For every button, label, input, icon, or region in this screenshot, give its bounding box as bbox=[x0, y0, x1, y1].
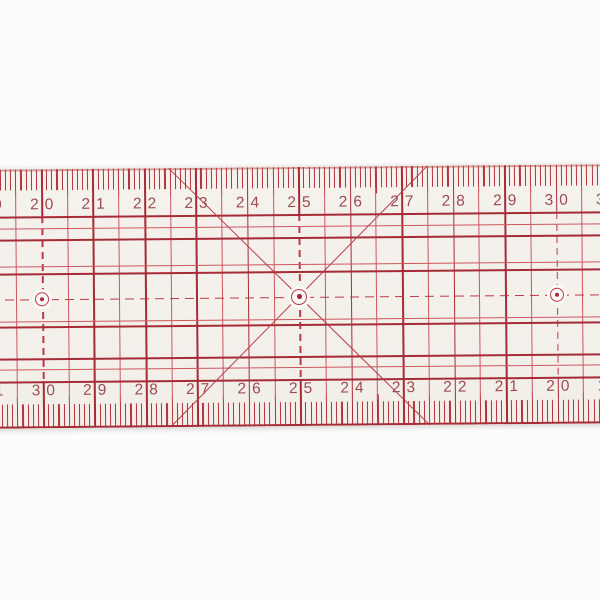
punch-hole-center-dot bbox=[554, 292, 558, 296]
mm-tick bbox=[576, 165, 577, 186]
mm-tick bbox=[566, 165, 567, 186]
mm-tick bbox=[396, 166, 397, 187]
mm-tick bbox=[161, 403, 162, 427]
mm-tick bbox=[192, 403, 193, 427]
mm-tick bbox=[113, 169, 114, 190]
mm-tick bbox=[308, 167, 309, 188]
mm-tick bbox=[105, 404, 106, 428]
mm-tick bbox=[154, 168, 155, 189]
mm-tick bbox=[100, 404, 101, 428]
mm-tick bbox=[151, 403, 152, 427]
mm-tick bbox=[393, 401, 394, 425]
mm-tick bbox=[519, 165, 520, 186]
mm-tick bbox=[540, 165, 541, 186]
mm-tick bbox=[485, 400, 486, 424]
mm-tick bbox=[499, 165, 500, 186]
mm-tick bbox=[136, 403, 137, 427]
mm-tick bbox=[175, 168, 176, 189]
mm-tick bbox=[442, 166, 443, 187]
scale-number: 28 bbox=[442, 193, 471, 211]
mm-tick bbox=[488, 165, 489, 186]
mm-tick bbox=[550, 165, 551, 186]
mm-tick bbox=[382, 401, 383, 425]
scale-number: 29 bbox=[493, 192, 522, 210]
mm-tick bbox=[128, 168, 129, 189]
mm-tick bbox=[447, 166, 448, 187]
mm-tick bbox=[463, 166, 464, 187]
mm-tick bbox=[236, 168, 237, 189]
mm-tick bbox=[563, 400, 564, 424]
mm-tick bbox=[5, 170, 6, 191]
mm-tick bbox=[288, 167, 289, 188]
mm-tick bbox=[511, 400, 512, 424]
mm-tick bbox=[226, 168, 227, 189]
mm-tick bbox=[460, 401, 461, 425]
mm-tick bbox=[56, 169, 57, 190]
mm-tick bbox=[331, 402, 332, 426]
half-cm-line bbox=[581, 186, 584, 398]
mm-tick bbox=[468, 166, 469, 187]
mm-tick bbox=[367, 401, 368, 425]
scale-number: 27 bbox=[186, 381, 215, 399]
mm-tick bbox=[413, 401, 414, 425]
scale-number: 24 bbox=[340, 379, 369, 397]
scale-number: 22 bbox=[133, 195, 162, 213]
mm-tick bbox=[588, 399, 589, 423]
mm-tick bbox=[51, 169, 52, 190]
mm-tick bbox=[264, 402, 265, 426]
mm-tick bbox=[115, 404, 116, 428]
mm-tick bbox=[254, 402, 255, 426]
photo-canvas: 19202122232425262728293031 3130292827262… bbox=[0, 0, 600, 600]
mm-tick bbox=[295, 402, 296, 426]
mm-tick bbox=[177, 403, 178, 427]
mm-tick bbox=[346, 402, 347, 426]
mm-tick bbox=[521, 400, 522, 424]
mm-tick bbox=[516, 400, 517, 424]
mm-tick bbox=[372, 401, 373, 425]
half-cm-line bbox=[118, 190, 121, 402]
mm-tick bbox=[82, 169, 83, 190]
mm-tick bbox=[190, 168, 191, 189]
punch-hole-center-dot bbox=[40, 297, 44, 301]
mm-tick bbox=[149, 168, 150, 189]
mm-tick bbox=[7, 405, 8, 429]
scale-number: 31 bbox=[0, 383, 10, 401]
mm-tick bbox=[483, 165, 484, 186]
mm-tick bbox=[458, 166, 459, 187]
mm-tick bbox=[344, 167, 345, 188]
mm-tick bbox=[321, 402, 322, 426]
mm-tick bbox=[391, 166, 392, 187]
mm-tick bbox=[591, 164, 592, 185]
mm-tick bbox=[228, 403, 229, 427]
mm-tick bbox=[283, 167, 284, 188]
mm-tick bbox=[568, 400, 569, 424]
mm-tick bbox=[130, 403, 131, 427]
mm-tick bbox=[491, 400, 492, 424]
mm-tick bbox=[537, 400, 538, 424]
mm-tick bbox=[213, 403, 214, 427]
scale-number: 23 bbox=[184, 195, 213, 213]
mm-tick bbox=[12, 405, 13, 429]
mm-tick bbox=[257, 167, 258, 188]
mm-tick bbox=[238, 403, 239, 427]
scale-number: 29 bbox=[83, 382, 112, 400]
half-cm-line bbox=[15, 190, 18, 402]
mm-tick bbox=[242, 167, 243, 188]
mm-tick bbox=[561, 165, 562, 186]
mm-tick bbox=[72, 169, 73, 190]
scale-number: 21 bbox=[81, 196, 110, 214]
mm-tick bbox=[437, 166, 438, 187]
mm-tick bbox=[329, 167, 330, 188]
mm-tick bbox=[10, 170, 11, 191]
scale-number: 24 bbox=[236, 194, 265, 212]
mm-tick bbox=[470, 401, 471, 425]
mm-tick bbox=[58, 404, 59, 428]
mm-tick bbox=[267, 167, 268, 188]
mm-tick bbox=[336, 402, 337, 426]
punch-hole bbox=[291, 288, 307, 304]
grid-ruler: 19202122232425262728293031 3130292827262… bbox=[0, 164, 600, 428]
scale-number: 22 bbox=[443, 378, 472, 396]
mm-tick bbox=[552, 400, 553, 424]
mm-tick bbox=[208, 403, 209, 427]
mm-tick bbox=[305, 402, 306, 426]
mm-tick bbox=[166, 403, 167, 427]
scale-number: 26 bbox=[237, 380, 266, 398]
mm-tick bbox=[593, 399, 594, 423]
mm-tick bbox=[110, 404, 111, 428]
mm-tick bbox=[84, 404, 85, 428]
mm-tick bbox=[360, 166, 361, 187]
mm-tick bbox=[125, 404, 126, 428]
half-cm-line bbox=[273, 188, 276, 400]
mm-tick bbox=[103, 169, 104, 190]
mm-tick bbox=[573, 400, 574, 424]
mm-tick bbox=[262, 167, 263, 188]
mm-tick bbox=[475, 400, 476, 424]
scale-number: 20 bbox=[30, 196, 59, 214]
mm-tick bbox=[156, 403, 157, 427]
mm-tick bbox=[355, 167, 356, 188]
mm-tick bbox=[278, 167, 279, 188]
mm-tick bbox=[218, 403, 219, 427]
punch-hole-center-dot bbox=[297, 294, 302, 299]
mm-tick bbox=[141, 403, 142, 427]
mm-tick bbox=[597, 164, 598, 185]
mm-tick bbox=[31, 169, 32, 190]
scale-number: 30 bbox=[544, 192, 573, 210]
mm-tick bbox=[20, 169, 21, 190]
mm-tick bbox=[388, 401, 389, 425]
mm-tick bbox=[231, 168, 232, 189]
half-cm-line bbox=[170, 189, 173, 401]
mm-tick bbox=[542, 400, 543, 424]
mm-tick bbox=[244, 402, 245, 426]
mm-tick bbox=[535, 165, 536, 186]
mm-tick bbox=[205, 168, 206, 189]
mm-tick bbox=[46, 169, 47, 190]
mm-tick bbox=[79, 404, 80, 428]
mm-tick bbox=[269, 402, 270, 426]
mm-tick bbox=[290, 402, 291, 426]
mm-tick bbox=[571, 165, 572, 186]
scale-number: 25 bbox=[289, 380, 318, 398]
mm-tick bbox=[319, 167, 320, 188]
mm-tick bbox=[439, 401, 440, 425]
scale-number: 19 bbox=[0, 197, 8, 215]
mm-tick bbox=[501, 400, 502, 424]
mm-tick bbox=[25, 169, 26, 190]
scale-number: 26 bbox=[339, 193, 368, 211]
mm-tick bbox=[259, 402, 260, 426]
mm-tick bbox=[586, 164, 587, 185]
mm-tick bbox=[380, 166, 381, 187]
mm-tick bbox=[64, 404, 65, 428]
punch-hole bbox=[35, 292, 49, 306]
mm-tick bbox=[527, 400, 528, 424]
mm-tick bbox=[61, 169, 62, 190]
mm-tick bbox=[36, 169, 37, 190]
mm-tick bbox=[2, 405, 3, 429]
mm-tick bbox=[432, 166, 433, 187]
mm-tick bbox=[77, 169, 78, 190]
mm-tick bbox=[164, 168, 165, 189]
mm-tick bbox=[545, 165, 546, 186]
scale-number: 23 bbox=[392, 379, 421, 397]
half-cm-line bbox=[67, 190, 70, 402]
mm-tick bbox=[48, 404, 49, 428]
mm-tick bbox=[411, 166, 412, 187]
mm-tick bbox=[365, 166, 366, 187]
mm-tick bbox=[133, 168, 134, 189]
half-cm-line bbox=[324, 188, 327, 400]
mm-tick bbox=[339, 167, 340, 188]
mm-tick bbox=[547, 400, 548, 424]
mm-tick bbox=[53, 404, 54, 428]
mm-tick bbox=[473, 165, 474, 186]
half-cm-line bbox=[478, 186, 481, 398]
scale-number: 27 bbox=[390, 193, 419, 211]
mm-tick bbox=[303, 167, 304, 188]
half-cm-line bbox=[530, 186, 533, 398]
mm-tick bbox=[97, 169, 98, 190]
scale-number: 25 bbox=[287, 194, 316, 212]
mm-tick bbox=[310, 402, 311, 426]
mm-tick bbox=[123, 169, 124, 190]
mm-tick bbox=[514, 165, 515, 186]
mm-tick bbox=[252, 167, 253, 188]
mm-tick bbox=[434, 401, 435, 425]
scale-number: 28 bbox=[135, 381, 164, 399]
mm-tick bbox=[87, 169, 88, 190]
mm-tick bbox=[314, 167, 315, 188]
scale-number: 21 bbox=[495, 378, 524, 396]
scale-number: 30 bbox=[32, 382, 61, 400]
mm-tick bbox=[494, 165, 495, 186]
mm-tick bbox=[362, 401, 363, 425]
mm-tick bbox=[465, 401, 466, 425]
mm-tick bbox=[357, 401, 358, 425]
mm-tick bbox=[334, 167, 335, 188]
mm-tick bbox=[509, 165, 510, 186]
mm-tick bbox=[233, 403, 234, 427]
mm-tick bbox=[444, 401, 445, 425]
punch-hole bbox=[549, 287, 563, 301]
mm-tick bbox=[293, 167, 294, 188]
mm-tick bbox=[108, 169, 109, 190]
mm-tick bbox=[386, 166, 387, 187]
mm-tick bbox=[33, 404, 34, 428]
mm-tick bbox=[38, 404, 39, 428]
mm-tick bbox=[216, 168, 217, 189]
mm-tick bbox=[139, 168, 140, 189]
mm-tick bbox=[370, 166, 371, 187]
mm-tick bbox=[27, 404, 28, 428]
mm-tick bbox=[0, 170, 1, 191]
mm-tick bbox=[496, 400, 497, 424]
mm-tick bbox=[280, 402, 281, 426]
mm-tick bbox=[578, 400, 579, 424]
mm-tick bbox=[200, 168, 201, 189]
mm-tick bbox=[316, 402, 317, 426]
mm-tick bbox=[89, 404, 90, 428]
mm-tick bbox=[398, 401, 399, 425]
mm-tick bbox=[285, 402, 286, 426]
mm-tick bbox=[74, 404, 75, 428]
mm-tick bbox=[449, 401, 450, 425]
mm-tick bbox=[202, 403, 203, 427]
mm-tick bbox=[211, 168, 212, 189]
mm-tick bbox=[341, 402, 342, 426]
mm-tick bbox=[524, 165, 525, 186]
scale-number: 20 bbox=[546, 378, 575, 396]
scale-number: 31 bbox=[596, 191, 600, 209]
mm-tick bbox=[159, 168, 160, 189]
half-cm-line bbox=[427, 187, 430, 399]
mm-tick bbox=[22, 404, 23, 428]
